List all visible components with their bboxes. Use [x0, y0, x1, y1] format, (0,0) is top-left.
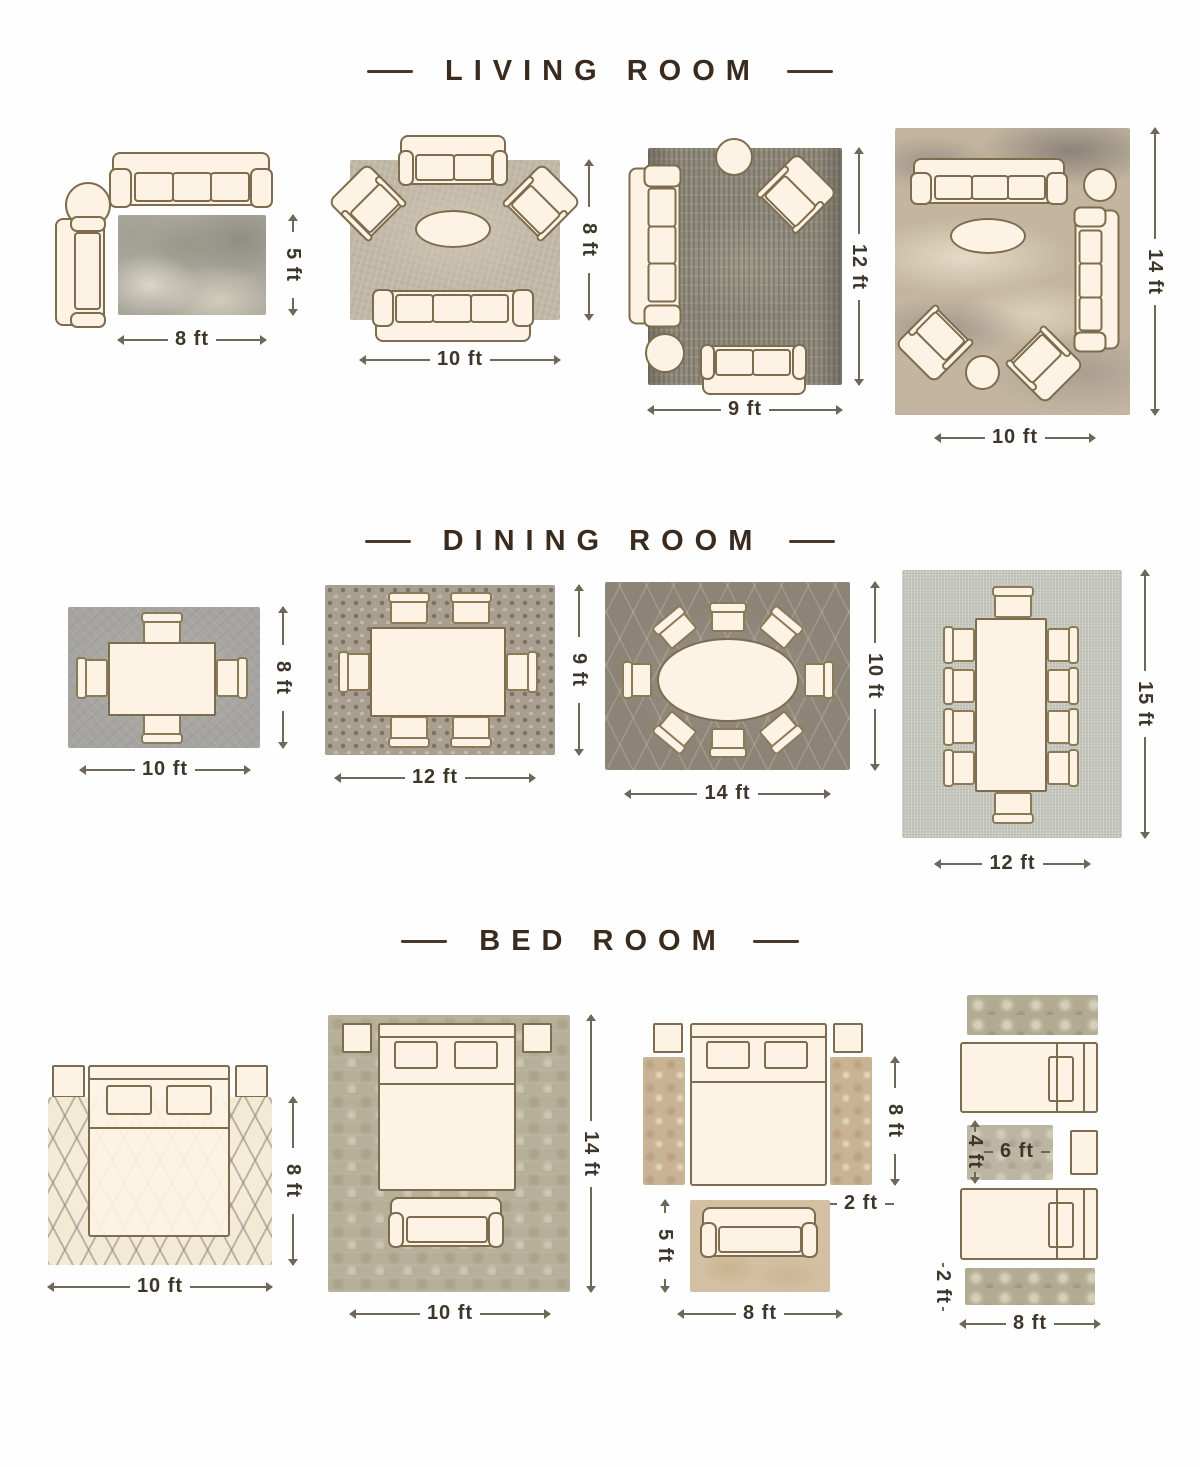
section-title-text: DINING ROOM	[437, 525, 764, 558]
dining-layout-12x9: 9 ft 12 ft	[310, 570, 600, 800]
height-dimension: 5 ft	[280, 215, 306, 315]
dining-chair	[1047, 669, 1073, 703]
section-title-text: BED ROOM	[473, 925, 727, 958]
runner-rug	[643, 1057, 685, 1185]
width-dimension: 10 ft	[360, 348, 560, 371]
runner-height-dimension: 8 ft	[882, 1057, 908, 1185]
height-dimension: 9 ft	[566, 585, 592, 755]
pillow	[166, 1085, 212, 1115]
oval-coffee-table	[415, 210, 491, 248]
oval-dining-table	[657, 638, 799, 722]
dining-chair	[452, 716, 490, 742]
pillow	[706, 1041, 750, 1069]
section-title-living-room: LIVING ROOM	[0, 55, 1200, 88]
dining-chair	[143, 618, 181, 644]
dining-layout-10x8: 8 ft 10 ft	[40, 590, 320, 790]
dining-chair	[711, 608, 745, 632]
pillow	[106, 1085, 152, 1115]
pillow	[394, 1041, 438, 1069]
height-dimension: 8 ft	[270, 607, 296, 748]
three-seat-sofa	[112, 152, 270, 206]
loveseat-sofa	[702, 345, 806, 395]
rug-size-guide: LIVING ROOM 5 ft 8 ft	[0, 0, 1200, 1467]
dining-chair	[949, 669, 975, 703]
width-dimension: 10 ft	[350, 1302, 550, 1325]
dining-chair	[994, 792, 1032, 818]
width-dimension: 10 ft	[935, 426, 1095, 449]
round-side-table	[715, 138, 753, 176]
runner-width-dimension: 2 ft	[930, 1263, 956, 1311]
nightstand	[52, 1065, 85, 1098]
runner-width-dimension: 2 ft	[828, 1192, 888, 1215]
dining-layout-12x15: 15 ft 12 ft	[890, 560, 1200, 890]
three-seat-sofa	[1075, 210, 1120, 350]
nightstand	[522, 1023, 552, 1053]
dining-chair	[216, 659, 242, 697]
width-dimension: 10 ft	[80, 758, 250, 781]
title-dash-left	[365, 540, 411, 543]
bedroom-layout-10x14: 14 ft 10 ft	[310, 990, 610, 1335]
pillow	[454, 1041, 498, 1069]
height-dimension: 8 ft	[576, 160, 602, 320]
dining-chair	[949, 628, 975, 662]
living-layout-8x5: 5 ft 8 ft	[40, 130, 320, 365]
living-layout-9x12: 12 ft 9 ft	[620, 130, 880, 425]
section-title-dining-room: DINING ROOM	[0, 525, 1200, 558]
bed	[690, 1023, 827, 1186]
round-side-table	[965, 355, 1000, 390]
oval-coffee-table	[950, 218, 1026, 254]
title-dash-left	[401, 940, 447, 943]
width-dimension: 12 ft	[335, 766, 535, 789]
bed	[88, 1065, 230, 1237]
dining-chair	[506, 653, 532, 691]
dining-chair	[804, 663, 828, 697]
dining-chair	[949, 710, 975, 744]
loveseat-sofa	[400, 135, 506, 185]
nightstand	[653, 1023, 683, 1053]
dining-chair	[1047, 751, 1073, 785]
twin-bed	[960, 1188, 1098, 1260]
height-dimension: 14 ft	[578, 1015, 604, 1292]
width-dimension: 9 ft	[648, 398, 842, 421]
nightstand	[1070, 1130, 1098, 1175]
mid-rug-width-dimension: 6 ft	[984, 1140, 1050, 1163]
dining-chair	[344, 653, 370, 691]
dining-table	[975, 618, 1047, 792]
round-side-table	[645, 333, 685, 373]
width-dimension: 12 ft	[935, 852, 1090, 875]
twin-bed	[960, 1042, 1098, 1113]
runner-rug	[967, 995, 1098, 1035]
height-dimension: 12 ft	[846, 148, 872, 385]
section-title-bed-room: BED ROOM	[0, 925, 1200, 958]
height-dimension: 8 ft	[280, 1097, 306, 1265]
three-seat-sofa	[913, 158, 1065, 204]
dining-chair	[949, 751, 975, 785]
title-dash-right	[753, 940, 799, 943]
three-seat-sofa	[375, 290, 531, 342]
pillow	[764, 1041, 808, 1069]
dining-chair	[390, 716, 428, 742]
dining-chair	[82, 659, 108, 697]
nightstand	[342, 1023, 372, 1053]
bedroom-layout-runners: 8 ft 2 ft 5 ft 8 ft	[630, 1000, 915, 1335]
title-dash-left	[367, 70, 413, 73]
foot-rug-width-dimension: 8 ft	[678, 1302, 842, 1325]
dining-chair	[390, 598, 428, 624]
dining-chair	[628, 663, 652, 697]
height-dimension: 14 ft	[1142, 128, 1168, 415]
dining-chair	[994, 592, 1032, 618]
width-dimension: 10 ft	[48, 1275, 272, 1298]
round-side-table	[1083, 168, 1117, 202]
foot-rug-height-dimension: 5 ft	[652, 1200, 678, 1292]
foot-bench-sofa	[390, 1197, 502, 1247]
three-seat-sofa	[629, 168, 681, 325]
dining-chair	[1047, 628, 1073, 662]
nightstand	[833, 1023, 863, 1053]
runner-rug	[965, 1268, 1095, 1305]
section-title-text: LIVING ROOM	[439, 55, 761, 88]
living-layout-10x14: 14 ft 10 ft	[880, 110, 1200, 455]
area-rug	[118, 215, 266, 315]
dining-table	[108, 642, 216, 716]
runner-rug	[830, 1057, 872, 1185]
width-dimension: 8 ft	[118, 328, 266, 351]
dining-table	[370, 627, 506, 717]
width-dimension: 14 ft	[625, 782, 830, 805]
bedroom-layout-twin-beds: 4 ft 6 ft 2 ft 8 ft	[920, 980, 1200, 1345]
settee-sofa	[55, 218, 105, 326]
dining-layout-14x10: 10 ft 14 ft	[590, 570, 890, 810]
nightstand	[235, 1065, 268, 1098]
bed	[378, 1023, 516, 1191]
runner-length-dimension: 8 ft	[960, 1312, 1100, 1335]
pillow	[1048, 1056, 1074, 1102]
dining-chair	[1047, 710, 1073, 744]
title-dash-right	[789, 540, 835, 543]
foot-bench-sofa	[702, 1207, 816, 1257]
dining-chair	[452, 598, 490, 624]
height-dimension: 15 ft	[1132, 570, 1158, 838]
bedroom-layout-10x8: 8 ft 10 ft	[30, 1040, 320, 1305]
title-dash-right	[787, 70, 833, 73]
dining-chair	[711, 728, 745, 752]
height-dimension: 10 ft	[862, 582, 888, 770]
pillow	[1048, 1202, 1074, 1248]
living-layout-10x8: 8 ft 10 ft	[330, 120, 630, 375]
